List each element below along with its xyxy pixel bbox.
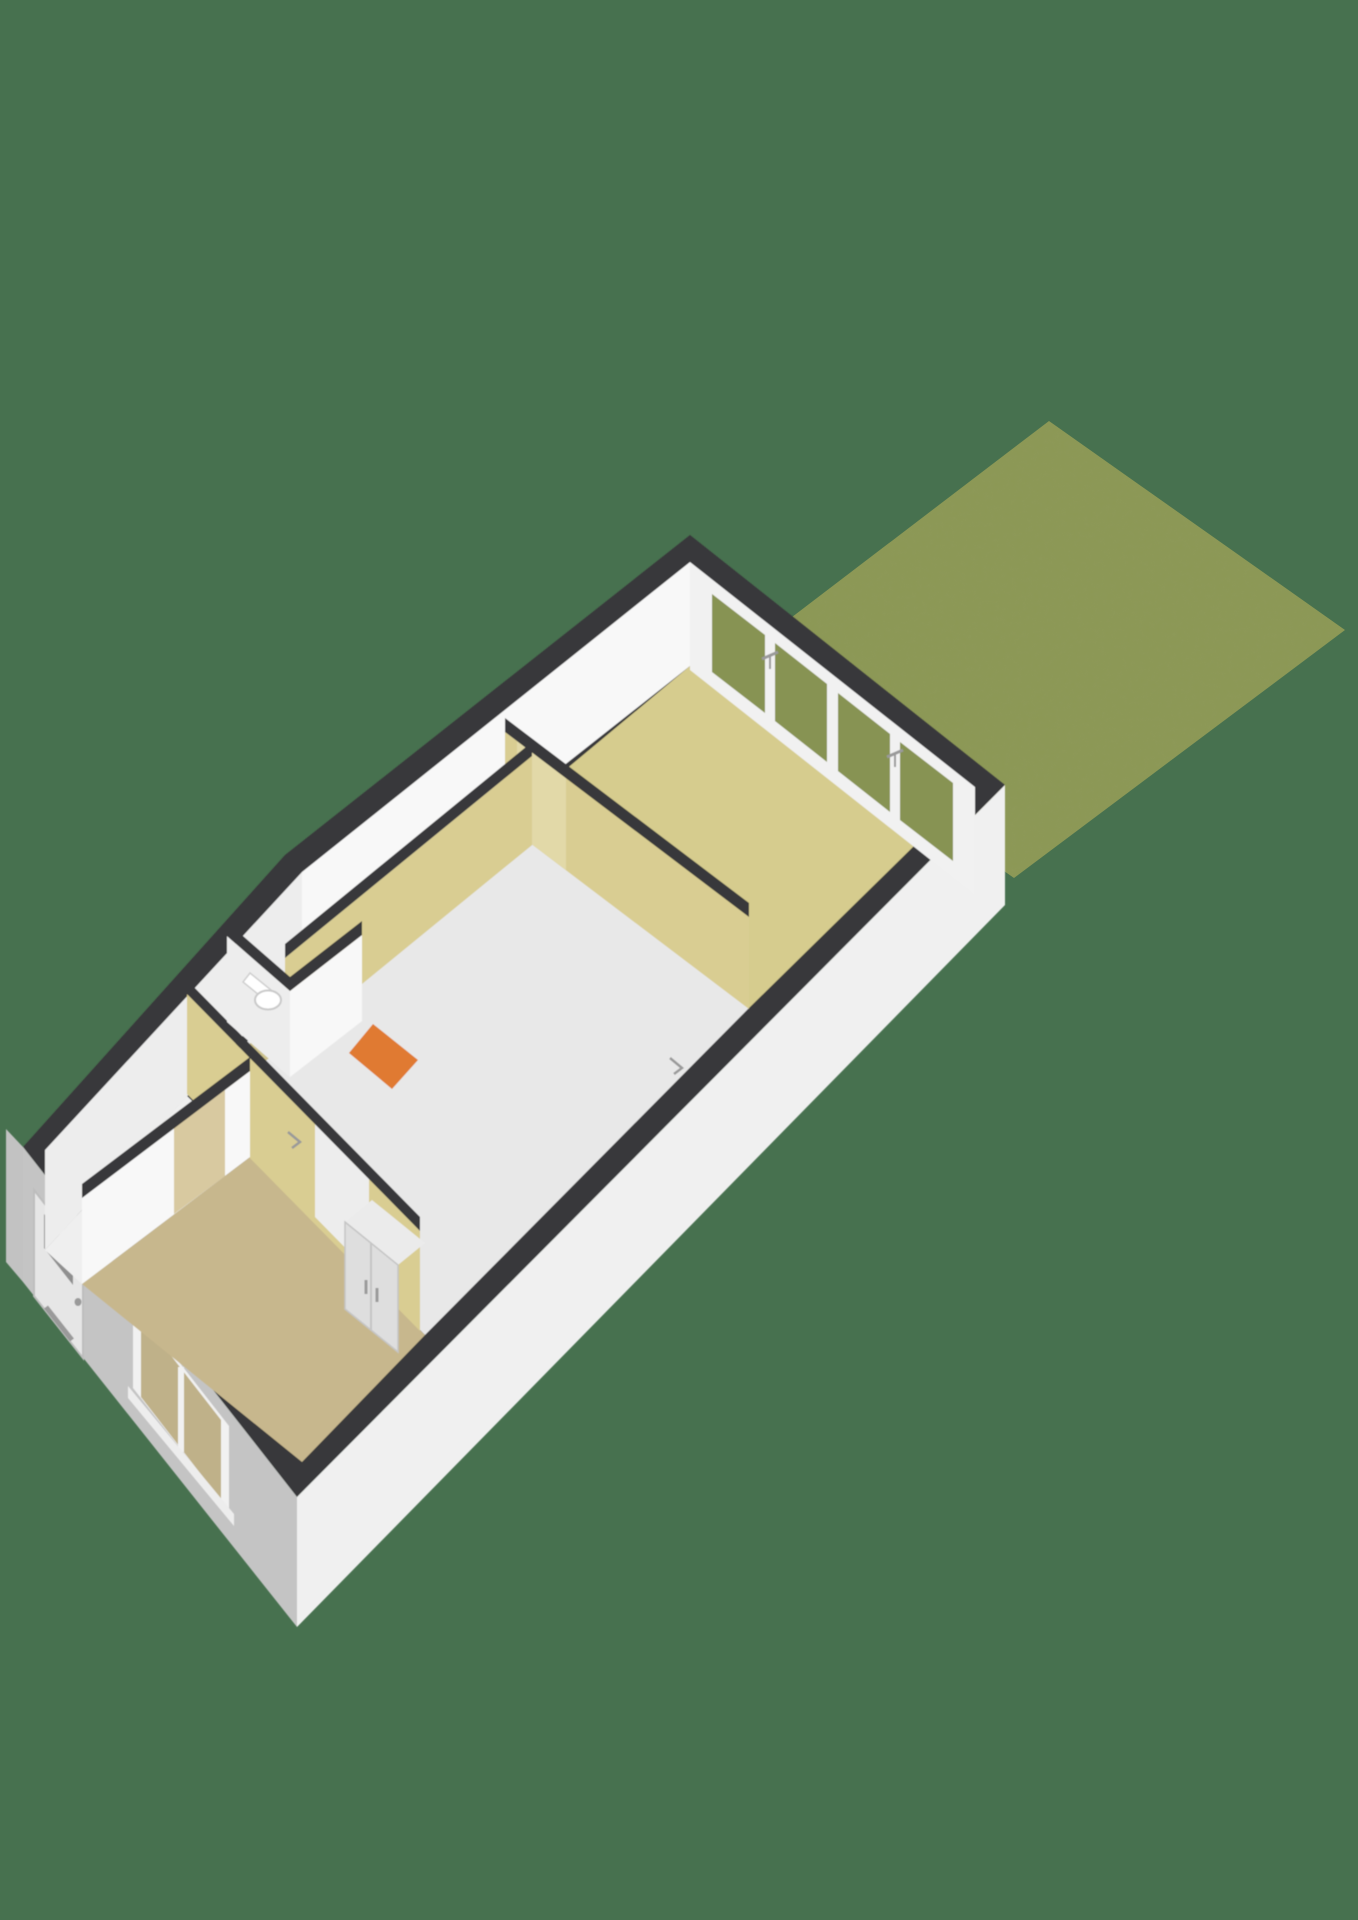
toilet-bowl <box>255 991 281 1010</box>
facade-nw-sliver <box>6 1129 23 1282</box>
floorplan-svg <box>0 0 1358 1920</box>
floorplan-image <box>0 0 1358 1920</box>
page: { "scene": { "kind": "3d-floorplan-rende… <box>0 0 1358 1920</box>
door-handle <box>75 1298 82 1306</box>
